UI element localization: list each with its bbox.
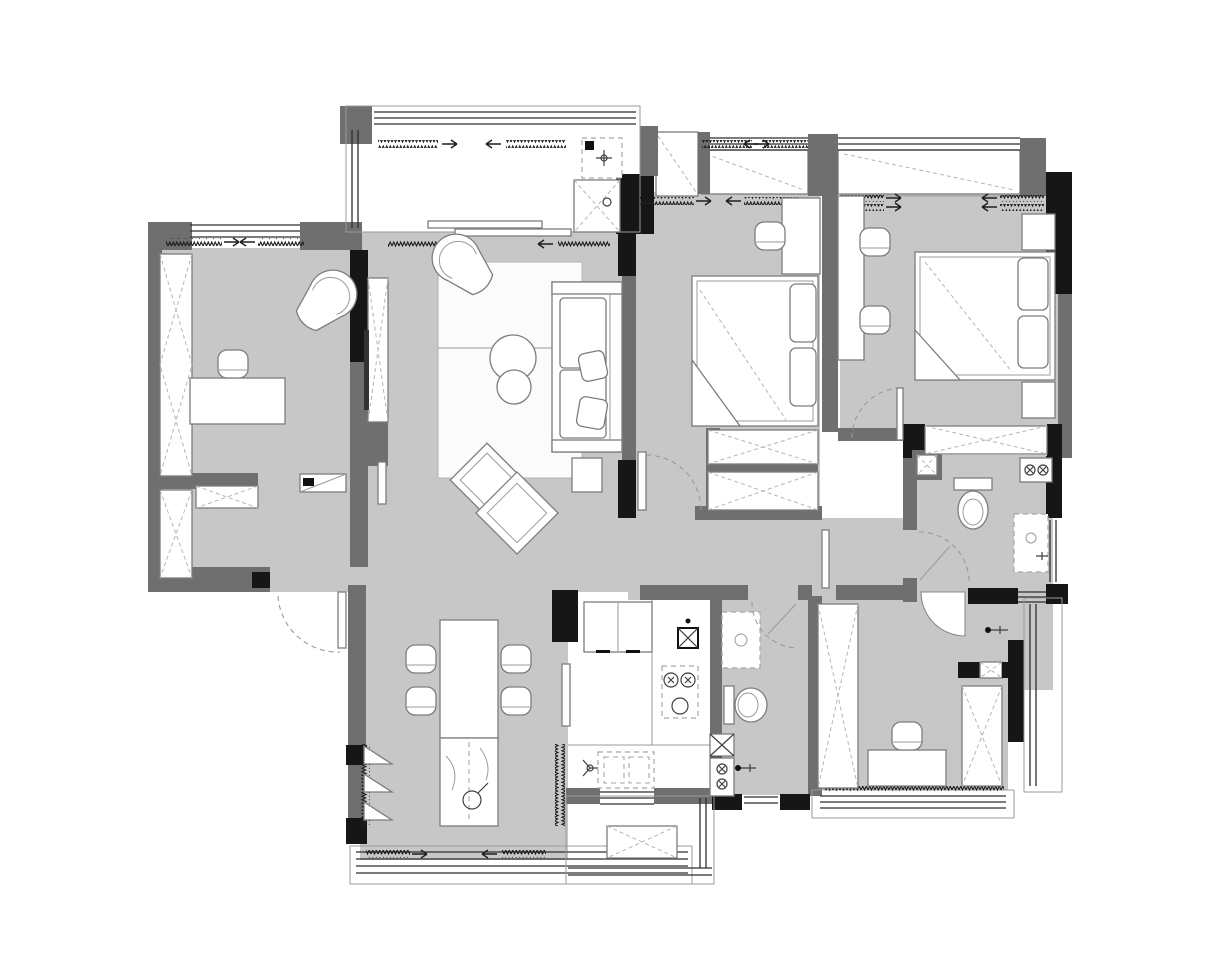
floor-plan-canvas <box>0 0 1210 964</box>
wall <box>350 420 388 466</box>
pillow <box>1018 258 1048 310</box>
task-chair <box>755 222 785 250</box>
zigzag-mark <box>558 240 610 248</box>
south-balcony <box>607 826 677 858</box>
wall <box>340 106 372 144</box>
shower-valve <box>985 627 991 633</box>
zigzag-mark <box>1000 204 1044 211</box>
zigzag-mark <box>640 197 694 205</box>
wall <box>958 662 980 678</box>
zigzag-mark <box>502 850 546 858</box>
washing-machine <box>582 138 622 178</box>
wall <box>252 572 270 588</box>
task-chair <box>892 722 922 750</box>
wall <box>822 160 838 196</box>
gas-hob <box>662 666 698 718</box>
sofa-armrest <box>552 282 622 294</box>
flue-shaft <box>678 619 698 649</box>
direction-arrow <box>224 238 239 246</box>
dining-chair <box>406 645 436 673</box>
wardrobe <box>160 254 192 476</box>
dining-chair <box>406 687 436 715</box>
laundry-balcony <box>574 138 622 232</box>
wall <box>618 176 636 276</box>
zigzag-mark <box>762 140 808 148</box>
bed <box>692 276 818 426</box>
wall <box>780 794 810 810</box>
kitchen <box>562 600 710 788</box>
throw-pillow <box>577 350 608 383</box>
wall <box>836 585 908 600</box>
entry-door-arc <box>278 596 340 652</box>
fridge <box>584 602 652 653</box>
wall <box>710 600 722 740</box>
toilet-tank <box>954 478 992 490</box>
window-frame <box>812 790 1014 818</box>
floor-plan <box>0 0 1210 964</box>
entry-door-leaf <box>338 592 346 648</box>
nightstand <box>1022 214 1055 250</box>
wall <box>300 222 362 250</box>
kitchen-island <box>440 738 498 826</box>
socket-symbols <box>1020 458 1052 482</box>
zigzag-mark <box>166 238 222 246</box>
dining-chair <box>501 687 531 715</box>
shaft-dot <box>686 619 691 624</box>
nightstand <box>1022 382 1055 418</box>
vanity <box>722 612 760 668</box>
sliding-door-leaf <box>378 462 386 504</box>
direction-arrow <box>486 140 501 148</box>
bench-mark <box>303 478 314 486</box>
wall <box>838 428 903 441</box>
wall <box>552 590 578 642</box>
dining-table <box>440 620 498 738</box>
wall <box>1047 424 1062 458</box>
zigzag-mark <box>506 140 566 148</box>
sliding-door-leaf <box>455 229 571 236</box>
zigzag-mark <box>366 850 410 858</box>
side-table <box>572 458 602 492</box>
wall <box>822 196 838 432</box>
wall <box>348 585 366 745</box>
door-leaf <box>897 388 903 440</box>
wall <box>640 585 748 600</box>
wall <box>1020 138 1046 196</box>
toilet-tank <box>724 686 734 724</box>
washer-control <box>585 141 594 150</box>
zigzag-mark <box>1000 195 1044 202</box>
wall <box>720 464 818 472</box>
zigzag-mark <box>258 238 304 246</box>
zigzag-mark <box>378 140 438 148</box>
wall <box>618 460 636 518</box>
fridge-handle <box>596 650 610 653</box>
desk <box>782 198 820 274</box>
direction-arrow <box>442 140 457 148</box>
toilet <box>724 686 767 724</box>
throw-pillow <box>576 396 609 430</box>
chair <box>860 228 890 256</box>
pillow <box>1018 316 1048 368</box>
bed <box>915 252 1055 380</box>
wall <box>968 588 1018 604</box>
task-chair <box>218 350 248 378</box>
direction-arrow <box>240 238 255 246</box>
tv <box>364 330 369 410</box>
sofa <box>552 282 622 452</box>
dresser-desk <box>838 196 864 360</box>
faucet-arm <box>583 760 598 776</box>
coffee-table <box>497 370 531 404</box>
dining-chair <box>501 645 531 673</box>
shower-valve <box>735 765 741 771</box>
wall <box>1046 584 1068 604</box>
sofa-armrest <box>552 440 622 452</box>
wall <box>1008 640 1024 742</box>
zigzag-mark <box>388 240 440 248</box>
desk <box>868 750 946 786</box>
sliding-door-leaf <box>822 530 829 588</box>
sliding-door-leaf <box>562 664 570 726</box>
pillow <box>790 348 816 406</box>
door-leaf <box>638 452 646 510</box>
wall <box>622 276 636 460</box>
wall <box>350 466 368 567</box>
socket-symbols <box>710 758 734 796</box>
sliding-door-leaf <box>428 221 542 228</box>
zigzag-mark-vertical <box>555 744 565 826</box>
desk <box>190 378 285 424</box>
kitchen-sink <box>583 752 654 788</box>
toilet-bowl <box>958 491 988 529</box>
pillow <box>790 284 816 342</box>
wall <box>640 126 658 176</box>
fridge-handle <box>626 650 640 653</box>
chair <box>860 306 890 334</box>
